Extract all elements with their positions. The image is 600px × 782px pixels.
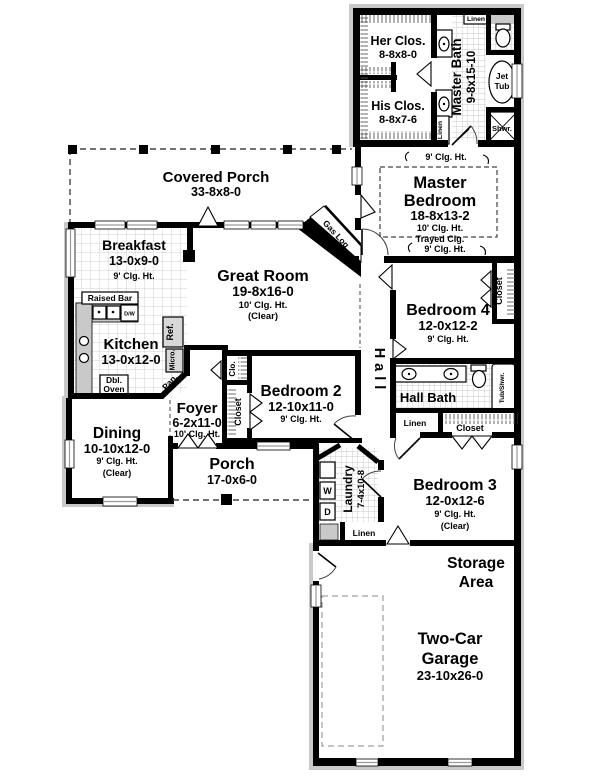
shower-label: Shwr. (492, 124, 512, 133)
counter (76, 303, 92, 395)
sink-drain (112, 311, 115, 314)
ceiling-note: 10' Clg. Ht. (174, 429, 220, 439)
room-dims-dining: 10-10x12-0 (84, 441, 151, 456)
door-swing (394, 438, 420, 459)
garage-vent (356, 759, 378, 766)
room-dims-bedroom3: 12-0x12-6 (425, 493, 484, 508)
room-dims-kitchen: 13-0x12-0 (101, 352, 160, 367)
room-label-his-closet: His Clos. (371, 99, 425, 113)
ceiling-note: 10' Clg. Ht. (239, 300, 288, 311)
raised-bar-label: Raised Bar (88, 293, 133, 303)
ceiling-note: 9' Clg. Ht. (96, 456, 137, 466)
washer-label: W (323, 486, 332, 496)
utility-box (320, 462, 335, 478)
room-label-bedroom3: Bedroom 3 (413, 477, 497, 494)
porch-post (139, 145, 148, 154)
room-label-master-bath: Master Bath (449, 38, 464, 115)
sink-drain (443, 43, 445, 45)
door-swing (417, 62, 431, 86)
microwave-label: Micro. (170, 350, 177, 371)
window (224, 221, 249, 229)
sink-drain (408, 373, 410, 375)
linen-label: Linen (437, 121, 444, 139)
room-dims-his-closet: 8-8x7-6 (379, 114, 417, 126)
ceiling-note: (Clear) (103, 468, 132, 478)
sink-drain (450, 373, 452, 375)
garage-vent (448, 759, 472, 766)
room-label-storage: Area (459, 574, 494, 591)
linen-label: Linen (353, 528, 376, 538)
room-label-master-bedroom: Master (413, 174, 467, 192)
room-dims-covered-porch: 33-8x8-0 (191, 185, 241, 199)
room-label-hall-bath: Hall Bath (400, 390, 456, 405)
door-swing (387, 526, 409, 544)
window (65, 440, 74, 468)
room-label-garage: Two-Car (418, 630, 483, 648)
room-label-her-closet: Her Clos. (371, 34, 426, 48)
door-swing (362, 229, 388, 255)
window (278, 221, 303, 229)
window (127, 221, 157, 229)
window (251, 221, 276, 229)
room-dims-bedroom4: 12-0x12-2 (418, 318, 477, 333)
room-dims-great-room: 19-8x16-0 (232, 284, 294, 299)
leader-line (480, 246, 485, 255)
jet-tub-label: Jet (496, 71, 508, 81)
porch-post (221, 494, 232, 505)
porch-post (211, 145, 220, 154)
ceiling-note: (Clear) (441, 521, 470, 531)
room-label-garage: Garage (422, 650, 479, 668)
room-label-bedroom4: Bedroom 4 (406, 302, 490, 319)
window (66, 229, 75, 277)
room-label-laundry: Laundry (341, 465, 355, 513)
room-dims-foyer: 6-2x11-0 (172, 416, 221, 430)
linen-label: Linen (467, 16, 485, 23)
porch-post (332, 145, 341, 154)
closet-label: Closet (233, 398, 243, 426)
room-dims-laundry: 7-4x10-8 (356, 470, 367, 508)
cooktop-burner (80, 337, 89, 346)
room-label-dining: Dining (93, 425, 141, 442)
tub-shower-label: Tub/Shwr. (499, 373, 506, 404)
linen-label: Linen (404, 418, 427, 428)
room-label-breakfast: Breakfast (102, 237, 166, 253)
window (103, 497, 137, 506)
room-label-covered-porch: Covered Porch (163, 169, 270, 186)
jet-tub-label: Tub (495, 81, 510, 91)
toilet (496, 29, 510, 47)
ceiling-note: 9' Clg. Ht. (280, 414, 321, 424)
window (311, 585, 321, 607)
room-dims-breakfast: 13-0x9-0 (109, 254, 159, 268)
leader-line (405, 152, 409, 161)
closet-door (250, 412, 262, 430)
closet-label: Closet (494, 277, 504, 305)
closet-door (452, 436, 472, 449)
door-swing (393, 339, 406, 359)
room-label-storage: Storage (447, 555, 505, 572)
refrigerator-label: Ref. (165, 323, 175, 340)
room-label-bedroom2: Bedroom 2 (261, 383, 342, 400)
leader-line (483, 155, 488, 164)
room-dims-master-bath: 9-8x15-10 (466, 51, 478, 103)
window (257, 442, 290, 450)
closet-label: Closet (456, 423, 484, 433)
door-swing (318, 553, 336, 579)
ceiling-note: 9' Clg. Ht. (113, 271, 154, 281)
porch-post (68, 145, 77, 154)
door-swing (334, 416, 356, 441)
room-dims-bedroom2: 12-10x11-0 (268, 399, 334, 414)
ceiling-note: Trayed Clg. (416, 234, 465, 244)
room-dims-master-bedroom: 18-8x13-2 (410, 208, 469, 223)
closet-door (211, 361, 221, 379)
dishwasher-label: D/W (124, 312, 136, 318)
room-label-kitchen: Kitchen (103, 336, 158, 353)
ceiling-note: 9' Clg. Ht. (425, 152, 466, 162)
ceiling-note: 9' Clg. Ht. (434, 509, 475, 519)
sink-drain (98, 311, 101, 314)
window (95, 221, 125, 229)
room-dims-porch: 17-0x6-0 (207, 473, 257, 487)
closet-door (481, 271, 491, 289)
leader-line (408, 243, 412, 252)
porch-post (283, 145, 292, 154)
closet-door (472, 436, 492, 449)
window (512, 445, 522, 469)
dryer-label: D (324, 507, 331, 517)
room-label-foyer: Foyer (177, 400, 218, 417)
room-label-great-room: Great Room (217, 268, 309, 285)
shelf (320, 524, 338, 540)
cooktop-burner (80, 354, 89, 363)
room-dims-garage: 23-10x26-0 (417, 668, 484, 683)
room-dims-her-closet: 8-8x8-0 (379, 49, 417, 61)
ceiling-note: (Clear) (248, 311, 278, 322)
sink-drain (443, 103, 445, 105)
floor-plan: Covered Porch 33-8x8-0 Her Clos. 8-8x8-0… (0, 0, 600, 777)
car-bay-outline (322, 596, 383, 746)
ceiling-note: 9' Clg. Ht. (424, 244, 465, 254)
ceiling-note: 9' Clg. Ht. (427, 334, 468, 344)
fireplace (297, 205, 361, 277)
window (512, 64, 522, 98)
room-label-porch: Porch (209, 456, 254, 473)
double-oven-label: Oven (103, 384, 124, 394)
door-swing (379, 265, 392, 289)
toilet (473, 371, 486, 388)
door-swing (198, 207, 218, 226)
ceiling-note: 10' Clg. Ht. (417, 223, 463, 233)
window (352, 167, 362, 185)
closet-label: Clo. (228, 361, 237, 376)
floor-plan-page: Covered Porch 33-8x8-0 Her Clos. 8-8x8-0… (0, 0, 600, 777)
hall-label: Hall (371, 348, 387, 395)
door-swing (361, 195, 375, 218)
